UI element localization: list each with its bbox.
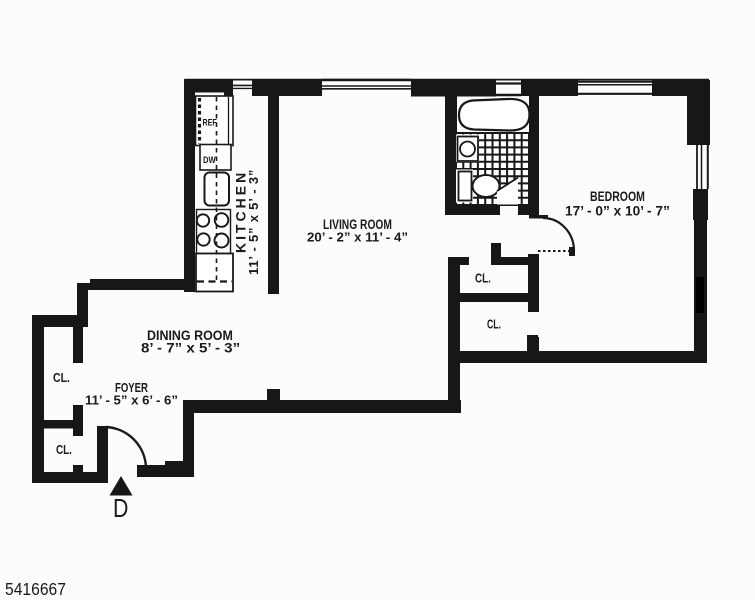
svg-text:CL.: CL. xyxy=(53,370,70,385)
svg-text:DW: DW xyxy=(203,154,216,165)
svg-text:17’ - 0” x 10’ - 7”: 17’ - 0” x 10’ - 7” xyxy=(565,204,670,219)
svg-text:BEDROOM: BEDROOM xyxy=(590,189,645,205)
svg-text:CL.: CL. xyxy=(487,318,501,332)
svg-text:D: D xyxy=(113,494,128,524)
svg-text:11’ - 5” x 6’ - 6”: 11’ - 5” x 6’ - 6” xyxy=(85,393,178,408)
svg-text:11’ - 5” x 5’ - 3”: 11’ - 5” x 5’ - 3” xyxy=(246,169,261,275)
svg-text:CL.: CL. xyxy=(475,272,491,286)
svg-text:REF: REF xyxy=(203,116,217,127)
svg-text:20’ - 2” x 11’ - 4”: 20’ - 2” x 11’ - 4” xyxy=(307,230,408,245)
svg-text:5416667: 5416667 xyxy=(5,579,66,599)
svg-text:8’ - 7” x 5’ - 3”: 8’ - 7” x 5’ - 3” xyxy=(141,341,240,356)
svg-text:CL.: CL. xyxy=(56,444,72,458)
